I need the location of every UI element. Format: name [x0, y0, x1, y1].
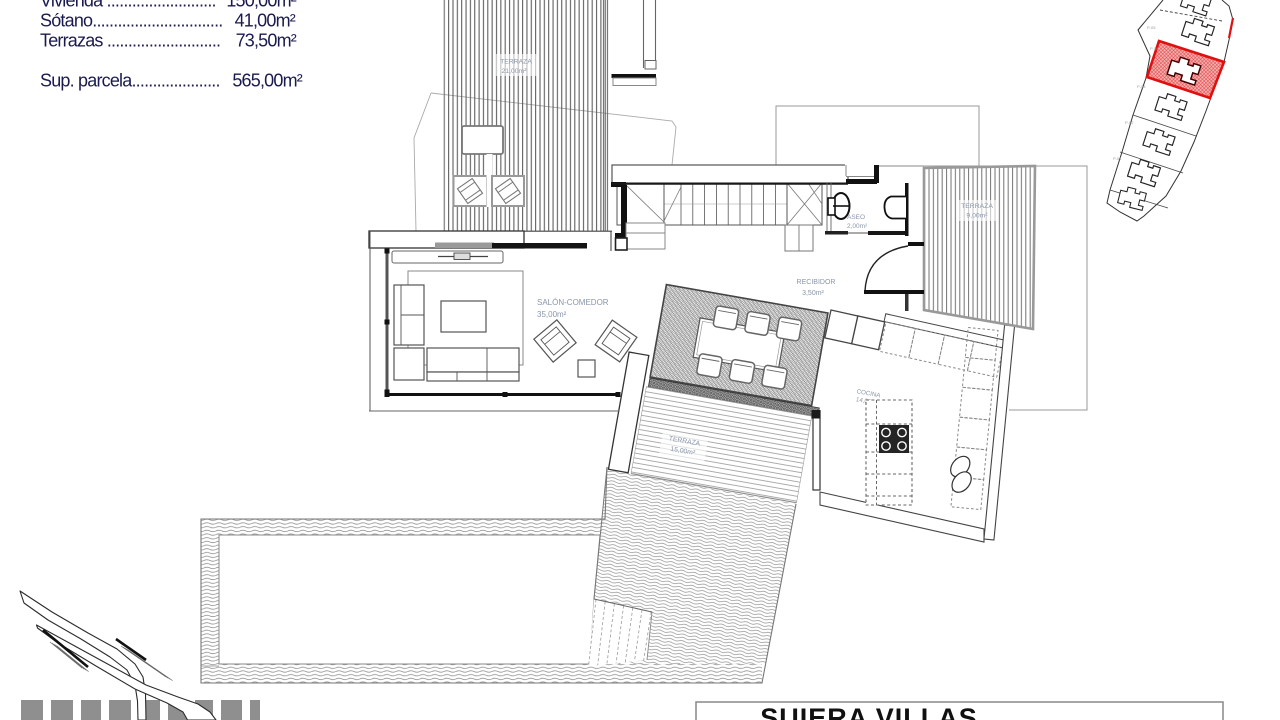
svg-text:41,00m²: 41,00m² — [235, 11, 296, 31]
svg-text:P-04: P-04 — [1150, 46, 1159, 51]
svg-text:P-03: P-03 — [1137, 84, 1146, 89]
svg-text:Vivienda ....................: Vivienda .......................... — [40, 0, 216, 11]
svg-text:73,50m²: 73,50m² — [236, 31, 297, 51]
svg-text:P-02: P-02 — [1125, 120, 1134, 125]
svg-text:9,00m²: 9,00m² — [966, 213, 988, 220]
svg-text:565,00m²: 565,00m² — [232, 71, 302, 91]
svg-text:Terrazas .....................: Terrazas ........................... — [40, 31, 220, 51]
svg-text:150,00m²: 150,00m² — [226, 0, 296, 11]
svg-text:ASEO: ASEO — [847, 214, 865, 221]
svg-text:35,00m²: 35,00m² — [537, 310, 567, 319]
svg-text:SALÓN-COMEDOR: SALÓN-COMEDOR — [537, 298, 609, 307]
svg-text:TERRAZA: TERRAZA — [500, 59, 532, 66]
svg-text:SUIERA VILLAS: SUIERA VILLAS — [760, 703, 978, 720]
svg-text:2,00m²: 2,00m² — [847, 223, 868, 230]
svg-text:Sup. parcela..................: Sup. parcela..................... — [40, 71, 220, 91]
svg-text:3,50m²: 3,50m² — [802, 290, 824, 297]
svg-text:P-05: P-05 — [1147, 25, 1156, 30]
svg-text:Sótano........................: Sótano............................... — [40, 11, 222, 31]
svg-text:P-01: P-01 — [1113, 156, 1122, 161]
svg-text:RECIBIDOR: RECIBIDOR — [797, 279, 836, 286]
svg-text:21,00m²: 21,00m² — [502, 68, 528, 75]
svg-text:TERRAZA: TERRAZA — [961, 203, 993, 210]
